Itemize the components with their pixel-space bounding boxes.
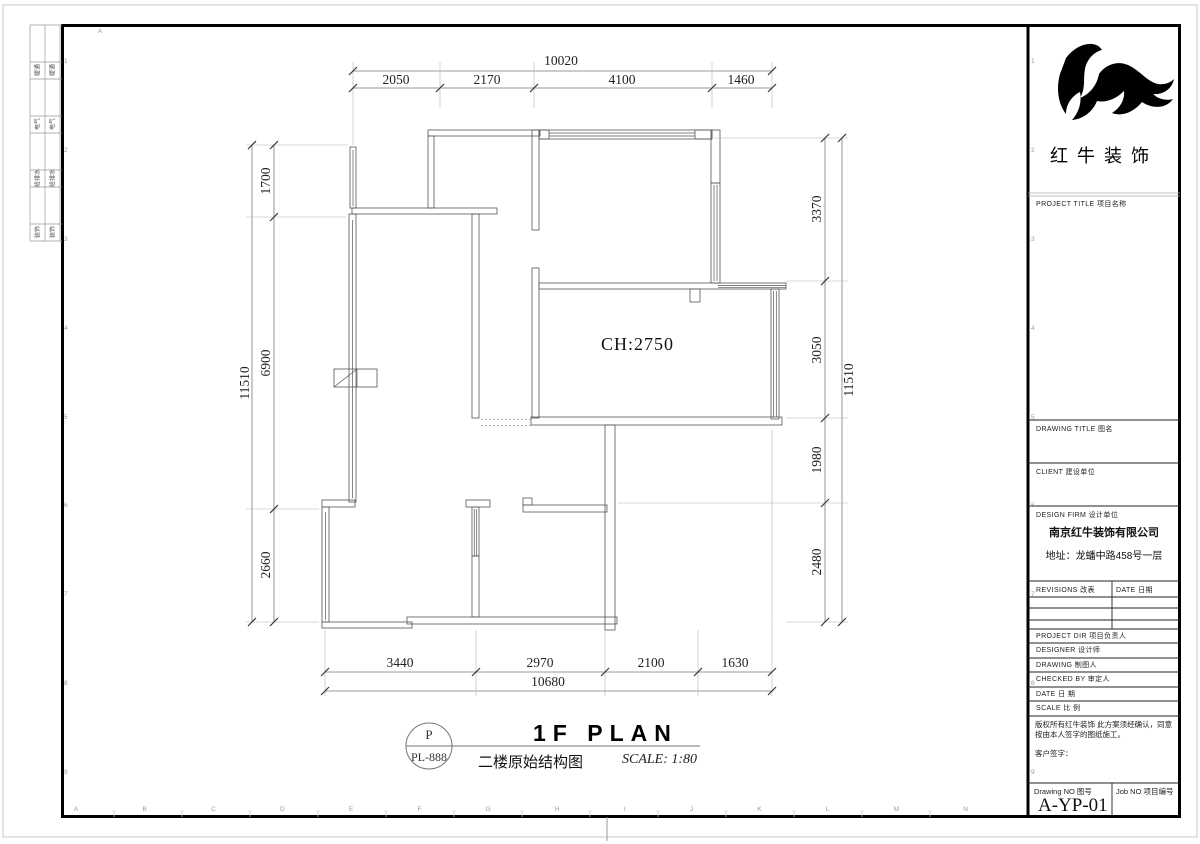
grid-letter: F	[417, 806, 421, 813]
dim-bottom-seg: 2970	[527, 655, 554, 671]
grid-letter: B	[143, 806, 147, 813]
grid-letter: I	[624, 806, 626, 813]
signoff-discipline: 给排水	[33, 169, 42, 187]
row-date: DATE 日 期	[1036, 689, 1075, 699]
dim-left-overall: 11510	[237, 366, 253, 399]
row-checked-by: CHECKED BY 审定人	[1036, 674, 1110, 684]
titleblock-logo-divider	[1028, 193, 1180, 196]
field-client: CLIENT 建设单位	[1036, 467, 1095, 477]
dim-right-seg: 3370	[809, 196, 825, 223]
extension-lines	[246, 62, 848, 696]
row-designer: DESIGNER 设计师	[1036, 645, 1100, 655]
ceiling-height-label: CH:2750	[601, 334, 674, 355]
dim-bottom-overall: 10680	[531, 674, 565, 690]
signoff-discipline: 电气	[48, 118, 57, 130]
job-no-label: Job NO 项目编号	[1116, 786, 1174, 797]
client-signature-label: 客户签字：	[1035, 748, 1073, 759]
grid-letter-top: A	[98, 28, 102, 35]
revisions-header: REVISIONS 改表	[1036, 585, 1095, 595]
signoff-discipline: 暖通	[33, 64, 42, 76]
signoff-discipline: 暖通	[48, 64, 57, 76]
row-project-dir: PROJECT DIR 项目负责人	[1036, 631, 1126, 641]
grid-number: 5	[1031, 414, 1035, 421]
cad-linework	[0, 0, 1200, 844]
dim-right-seg: 3050	[809, 337, 825, 364]
grid-letter: N	[963, 806, 968, 813]
grid-number: 5	[64, 414, 68, 421]
dim-top-seg: 1460	[728, 72, 755, 88]
dimension-lines	[252, 71, 842, 691]
grid-number: 1	[64, 58, 68, 65]
drawing-sheet: CH:2750 10020 2050 2170 4100 1460 3440 2…	[0, 0, 1200, 844]
company-address: 地址：龙蟠中路458号一层	[1046, 547, 1163, 562]
dashed-opening	[481, 420, 531, 426]
dim-top-overall: 10020	[544, 53, 578, 69]
grid-numbers-left: 123456789	[64, 58, 68, 776]
field-drawing-title: DRAWING TITLE 图名	[1036, 424, 1113, 434]
grid-number: 6	[1031, 502, 1035, 509]
grid-number: 1	[1031, 58, 1035, 65]
dim-right-seg: 1980	[809, 447, 825, 474]
plan-title-en: 1F PLAN	[533, 720, 678, 747]
grid-number: 9	[64, 769, 68, 776]
signoff-discipline: 给排水	[48, 169, 57, 187]
dim-right-overall: 11510	[841, 363, 857, 396]
grid-letters-bottom: ABCDEFGHIJKLMN	[74, 806, 968, 813]
grid-letter: E	[349, 806, 353, 813]
plan-title-cn: 二楼原始结构图	[478, 751, 583, 772]
grid-letter: G	[486, 806, 491, 813]
grid-letter: D	[280, 806, 285, 813]
dim-left-seg: 2660	[258, 552, 274, 579]
dimension-ticks	[248, 67, 846, 695]
dim-left-seg: 1700	[258, 168, 274, 195]
grid-number: 3	[64, 236, 68, 243]
grid-number: 4	[1031, 325, 1035, 332]
grid-letter: J	[690, 806, 693, 813]
dim-bottom-seg: 1630	[722, 655, 749, 671]
row-drawing: DRAWING 制图人	[1036, 660, 1097, 670]
grid-number: 8	[1031, 680, 1035, 687]
signoff-discipline: 装饰	[33, 226, 42, 238]
field-design-firm: DESIGN FIRM 设计单位	[1036, 510, 1118, 520]
grid-numbers-right: 123456789	[1031, 58, 1035, 776]
signoff-strip-grid	[30, 25, 62, 241]
dim-bottom-seg: 2100	[638, 655, 665, 671]
grid-letter: C	[211, 806, 216, 813]
grid-number: 7	[64, 591, 68, 598]
dim-top-seg: 2170	[474, 72, 501, 88]
detail-tag-bottom: PL-888	[411, 750, 447, 765]
signoff-discipline: 电气	[33, 118, 42, 130]
grid-number: 4	[64, 325, 68, 332]
dim-top-seg: 2050	[383, 72, 410, 88]
grid-letter: K	[757, 806, 761, 813]
signoff-discipline: 装饰	[48, 226, 57, 238]
brand-name: 红牛装饰	[1050, 142, 1158, 168]
revisions-date-header: DATE 日期	[1116, 585, 1153, 595]
window-lines	[326, 133, 787, 620]
grid-letter: M	[894, 806, 899, 813]
grid-number: 6	[64, 502, 68, 509]
company-name: 南京红牛装饰有限公司	[1049, 524, 1159, 540]
field-project-title: PROJECT TITLE 项目名称	[1036, 199, 1127, 209]
grid-number: 2	[64, 147, 68, 154]
dim-left-seg: 6900	[258, 350, 274, 377]
dim-right-seg: 2480	[809, 549, 825, 576]
walls	[322, 130, 786, 630]
dim-top-seg: 4100	[609, 72, 636, 88]
brand-logo	[1058, 44, 1174, 120]
grid-number: 9	[1031, 769, 1035, 776]
drawing-no-value: A-YP-01	[1038, 795, 1108, 817]
drawing-frame	[63, 25, 1180, 817]
grid-letter: L	[826, 806, 830, 813]
row-scale: SCALE 比 例	[1036, 703, 1080, 713]
grid-number: 7	[1031, 591, 1035, 598]
grid-number: 2	[1031, 147, 1035, 154]
grid-letter: H	[555, 806, 560, 813]
plan-scale-note: SCALE: 1:80	[622, 752, 697, 768]
dim-bottom-seg: 3440	[387, 655, 414, 671]
grid-number: 8	[64, 680, 68, 687]
grid-number: 3	[1031, 236, 1035, 243]
grid-letter: A	[74, 806, 78, 813]
detail-tag-top: P	[425, 727, 432, 743]
copyright-note: 版权所有红牛装饰 此方案须经确认，同意按由本人签字的图纸施工。	[1035, 720, 1177, 740]
